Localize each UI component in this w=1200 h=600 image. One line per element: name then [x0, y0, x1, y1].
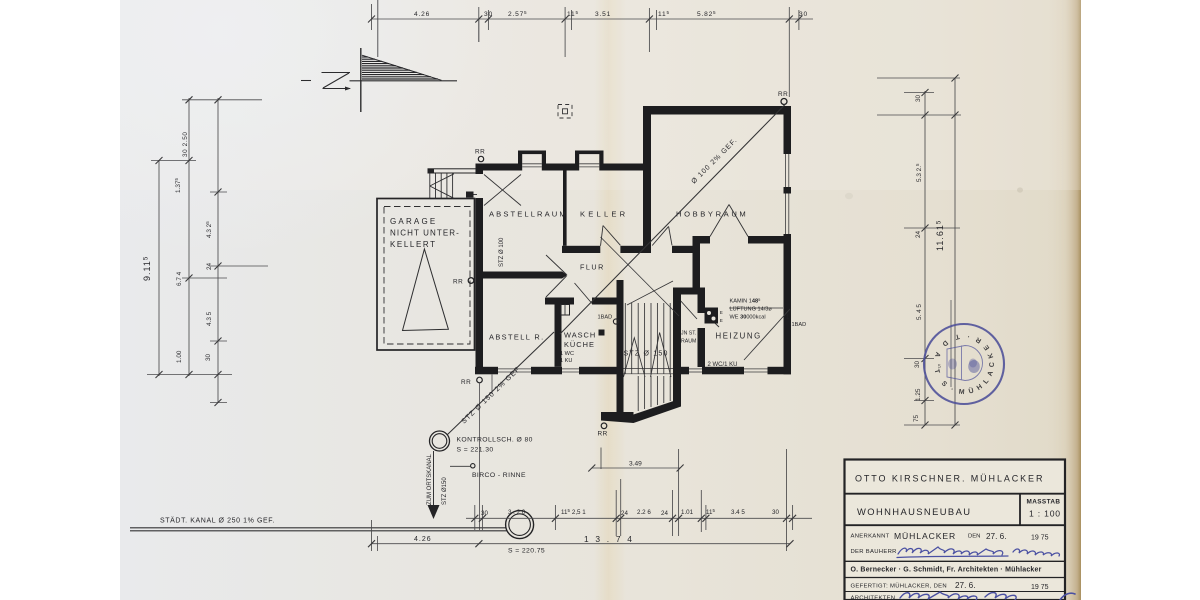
svg-text:GARAGE: GARAGE	[390, 217, 437, 226]
svg-text:30: 30	[205, 353, 212, 361]
svg-text:5. 4 5: 5. 4 5	[916, 304, 923, 320]
svg-text:WASCH: WASCH	[564, 331, 596, 340]
svg-text:KELLERT: KELLERT	[390, 240, 437, 249]
svg-text:HEIZUNG: HEIZUNG	[716, 332, 762, 341]
svg-text:3.4 5: 3.4 5	[731, 509, 745, 516]
svg-text:DER BAUHERR: DER BAUHERR	[851, 549, 897, 555]
svg-text:30 2.50: 30 2.50	[182, 131, 189, 157]
svg-text:STÄDT. KANAL Ø 250 1% GEF.: STÄDT. KANAL Ø 250 1% GEF.	[160, 517, 275, 525]
svg-text:30: 30	[484, 11, 493, 18]
svg-text:BIRCO - RINNE: BIRCO - RINNE	[472, 472, 526, 479]
svg-text:WOHNHAUSNEUBAU: WOHNHAUSNEUBAU	[857, 506, 971, 517]
svg-text:DEN: DEN	[968, 534, 980, 540]
svg-text:S = 220.75: S = 220.75	[508, 548, 545, 555]
svg-text:ANERKANNT: ANERKANNT	[851, 534, 890, 540]
svg-text:NICHT UNTER-: NICHT UNTER-	[390, 229, 460, 238]
svg-text:C: C	[989, 362, 996, 367]
svg-text:ARCHITEKTEN: ARCHITEKTEN	[851, 596, 896, 600]
svg-text:4.26: 4.26	[414, 11, 430, 18]
svg-text:E: E	[720, 318, 723, 323]
svg-text:4.26: 4.26	[414, 536, 432, 543]
svg-text:1: 1	[786, 315, 789, 321]
svg-text:KAMIN 1485: KAMIN 1485	[730, 297, 762, 305]
svg-text:E: E	[720, 310, 723, 315]
svg-text:27. 6.: 27. 6.	[955, 581, 976, 590]
svg-text:ZUM ORTSKANAL: ZUM ORTSKANAL	[427, 453, 433, 505]
svg-text:27. 6.: 27. 6.	[986, 532, 1007, 541]
svg-text:STZ Ø150: STZ Ø150	[442, 477, 448, 505]
svg-text:24: 24	[915, 230, 922, 238]
svg-text:FLUR: FLUR	[580, 263, 605, 272]
svg-text:30: 30	[481, 510, 488, 517]
svg-text:1 WC: 1 WC	[560, 351, 574, 357]
svg-text:30: 30	[772, 509, 779, 516]
svg-text:4.3 5: 4.3 5	[206, 311, 213, 326]
svg-text:RR: RR	[461, 379, 471, 386]
svg-text:KÜCHE: KÜCHE	[564, 340, 595, 349]
svg-text:MASSTAB: MASSTAB	[1027, 499, 1061, 506]
svg-text:STZ Ø 100: STZ Ø 100	[499, 237, 505, 267]
svg-text:1.00: 1.00	[176, 350, 183, 363]
svg-text:HOBBYRAUM: HOBBYRAUM	[676, 210, 748, 219]
svg-text:30: 30	[914, 360, 921, 368]
svg-text:30: 30	[799, 11, 808, 18]
svg-text:S = 221.30: S = 221.30	[457, 447, 494, 454]
svg-text:ABSTELLRAUM: ABSTELLRAUM	[489, 210, 568, 219]
svg-text:RR: RR	[453, 279, 463, 286]
svg-text:19 75: 19 75	[1031, 584, 1049, 591]
svg-text:KELLER: KELLER	[580, 210, 628, 219]
svg-text:1 : 100: 1 : 100	[1029, 509, 1061, 519]
svg-text:O. Bernecker · G. Schmidt, Fr.: O. Bernecker · G. Schmidt, Fr. Architekt…	[851, 567, 1042, 574]
svg-text:GEFERTIGT: MÜHLACKER, DEN: GEFERTIGT: MÜHLACKER, DEN	[851, 583, 947, 590]
svg-text:M: M	[958, 389, 965, 396]
svg-text:1 3 . 7 4: 1 3 . 7 4	[584, 534, 634, 544]
svg-text:6.7 4: 6.7 4	[176, 271, 183, 286]
svg-text:19 75: 19 75	[1031, 535, 1049, 542]
svg-text:5: 5	[938, 364, 941, 370]
svg-text:JN ST.: JN ST.	[681, 331, 696, 337]
svg-text:RR: RR	[598, 431, 608, 438]
svg-text:24: 24	[661, 510, 668, 517]
svg-text:RR: RR	[778, 91, 788, 98]
svg-text:LÜFTUNG 14/3ø: LÜFTUNG 14/3ø	[730, 306, 773, 313]
svg-text:11.615: 11.615	[935, 220, 945, 251]
svg-text:3.49: 3.49	[629, 461, 642, 468]
svg-text:RR: RR	[475, 149, 485, 156]
svg-text:KONTROLLSCH. Ø 80: KONTROLLSCH. Ø 80	[457, 437, 533, 444]
svg-text:1.01: 1.01	[681, 509, 694, 516]
svg-text:1BAD: 1BAD	[598, 315, 613, 321]
svg-text:24: 24	[206, 262, 213, 270]
svg-text:2.2 6: 2.2 6	[637, 509, 651, 516]
svg-text:WE 30000kcal: WE 30000kcal	[730, 315, 766, 321]
svg-text:75: 75	[913, 414, 920, 422]
svg-text:MÜHLACKER: MÜHLACKER	[894, 531, 956, 541]
svg-text:2 WC/1 KU: 2 WC/1 KU	[708, 362, 738, 368]
svg-text:3 . 2 0: 3 . 2 0	[508, 509, 526, 516]
svg-text:STZ Ø 150: STZ Ø 150	[624, 351, 669, 358]
svg-text:OTTO KIRSCHNER. MÜHLACKER: OTTO KIRSCHNER. MÜHLACKER	[855, 474, 1044, 484]
svg-text:30: 30	[915, 94, 922, 102]
svg-text:1BAD: 1BAD	[792, 322, 807, 328]
svg-text:3.51: 3.51	[595, 11, 611, 18]
svg-text:1.25: 1.25	[915, 388, 922, 401]
svg-text:1 KU: 1 KU	[560, 358, 572, 364]
svg-text:1152,5 1: 1152,5 1	[561, 508, 586, 516]
svg-text:RAUM: RAUM	[681, 339, 696, 345]
svg-text:24: 24	[621, 510, 628, 517]
svg-text:ABSTELL R.: ABSTELL R.	[489, 333, 545, 342]
